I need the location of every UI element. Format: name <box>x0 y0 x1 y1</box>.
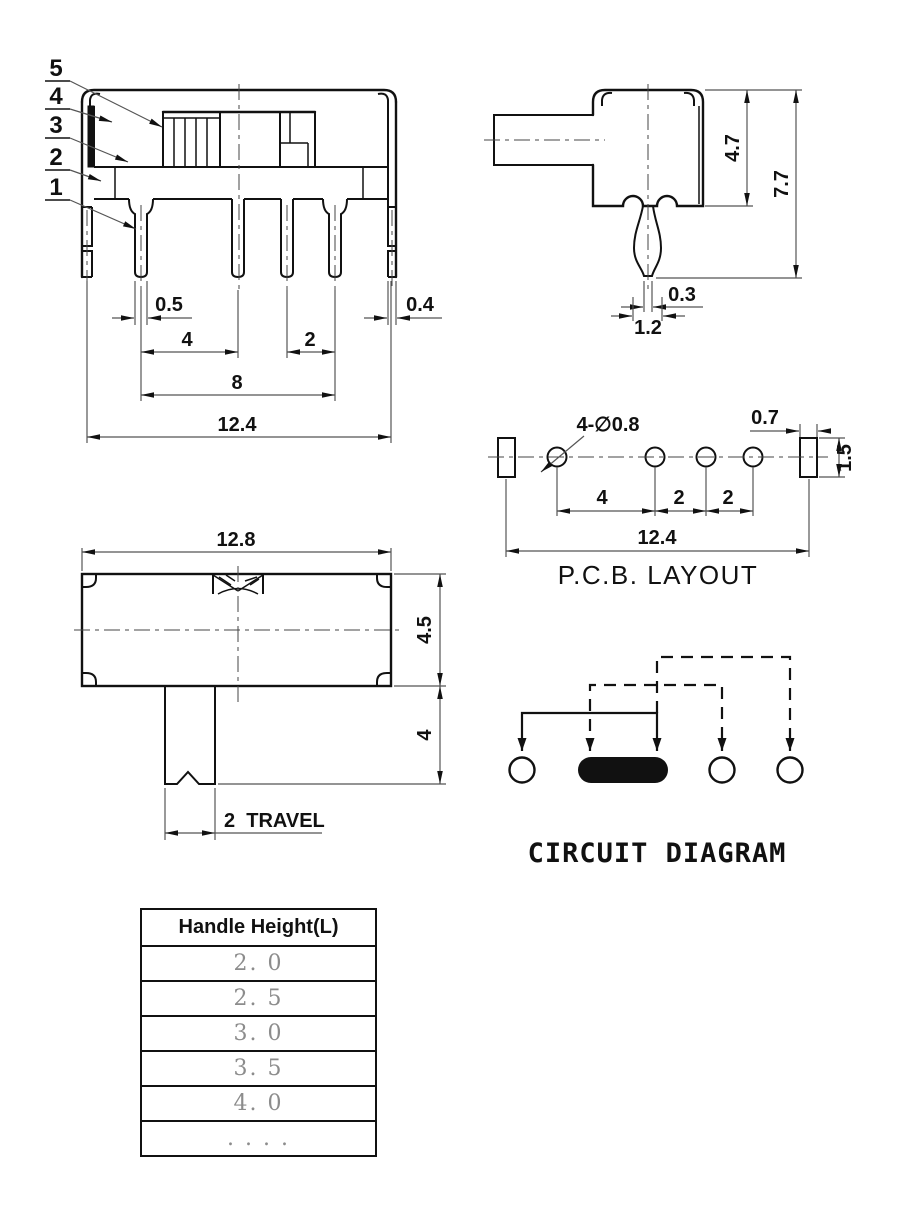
handle-height-table: Handle Height(L) 2. 0 2. 5 3. 0 3. 5 4. … <box>140 908 377 1157</box>
dim-pcb-overall: 12.4 <box>638 527 678 549</box>
table-row: 2. 5 <box>142 980 375 1015</box>
dim-tip-width: 0.3 <box>668 284 696 306</box>
callout-1: 1 <box>49 174 62 201</box>
terminal-1 <box>510 758 535 783</box>
front-view: 5 4 3 2 1 0.5 0.4 <box>45 55 442 443</box>
dim-slot-height: 1.5 <box>834 444 856 472</box>
pcb-layout: 4-∅0.8 0.7 1.5 4 2 2 12.4 P.C.B. LAY <box>488 407 856 590</box>
table-row: 3. 0 <box>142 1015 375 1050</box>
dim-pitch-b: 2 <box>304 329 315 351</box>
moving-contact <box>578 757 668 783</box>
dim-pitch-a: 4 <box>181 329 193 351</box>
pcb-dimensions: 4-∅0.8 0.7 1.5 4 2 2 12.4 <box>506 407 856 557</box>
dim-pcb-pitch-c: 2 <box>722 487 733 509</box>
dim-handle-length: 4 <box>414 729 436 741</box>
pcb-layout-title: P.C.B. LAYOUT <box>558 560 759 590</box>
front-view-callouts: 5 4 3 2 1 <box>45 55 162 229</box>
dim-slot-width: 0.7 <box>751 407 779 429</box>
dim-pin-width-side: 1.2 <box>634 317 662 339</box>
dim-pin-width: 0.5 <box>155 294 183 316</box>
side-view: 4.7 7.7 0.3 1.2 <box>484 84 802 339</box>
side-left-curl <box>602 93 612 106</box>
dim-body-height: 4.7 <box>722 134 744 162</box>
dim-overall: 12.4 <box>218 414 258 436</box>
dim-total-height: 7.7 <box>771 170 793 198</box>
top-view: 12.8 4.5 4 2 TRAVEL <box>74 529 446 840</box>
top-handle <box>165 686 215 784</box>
side-right-curl <box>684 93 694 106</box>
pin-2 <box>232 199 244 277</box>
callout-4: 4 <box>49 83 63 110</box>
top-view-geometry <box>74 566 399 784</box>
table-row: 4. 0 <box>142 1085 375 1120</box>
side-view-geometry <box>484 84 703 290</box>
table-row: 2. 0 <box>142 945 375 980</box>
dim-holes: 4-∅0.8 <box>576 414 639 436</box>
dim-pcb-pitch-a: 4 <box>596 487 608 509</box>
callout-5: 5 <box>49 55 62 82</box>
front-view-dimensions: 0.5 0.4 4 2 8 12.4 <box>87 281 442 443</box>
table-row: 3. 5 <box>142 1050 375 1085</box>
right-top-curl <box>378 94 388 106</box>
table-row: . . . . <box>142 1120 375 1155</box>
terminal-4 <box>778 758 803 783</box>
callout-2: 2 <box>49 144 62 171</box>
slider-knob <box>163 112 220 167</box>
drawing-canvas: 5 4 3 2 1 0.5 0.4 <box>0 0 900 1208</box>
terminal-3 <box>710 758 735 783</box>
dim-pcb-pitch-b: 2 <box>673 487 684 509</box>
dim-body-depth: 4.5 <box>414 616 436 644</box>
circuit-diagram: CIRCUIT DIAGRAM <box>510 657 803 869</box>
dim-top-overall: 12.8 <box>217 529 256 551</box>
pcb-geometry <box>488 438 828 477</box>
front-view-geometry <box>81 84 397 290</box>
circuit-dashed-link-2 <box>657 657 790 751</box>
side-view-dimensions: 4.7 7.7 0.3 1.2 <box>611 90 802 339</box>
technical-drawing-page: 5 4 3 2 1 0.5 0.4 <box>0 0 900 1208</box>
circuit-diagram-title: CIRCUIT DIAGRAM <box>528 838 787 869</box>
dim-span: 8 <box>231 372 242 394</box>
dim-travel: 2 TRAVEL <box>224 810 325 832</box>
callout-3: 3 <box>49 112 62 139</box>
dim-leg-width: 0.4 <box>406 294 435 316</box>
table-header: Handle Height(L) <box>142 910 375 945</box>
